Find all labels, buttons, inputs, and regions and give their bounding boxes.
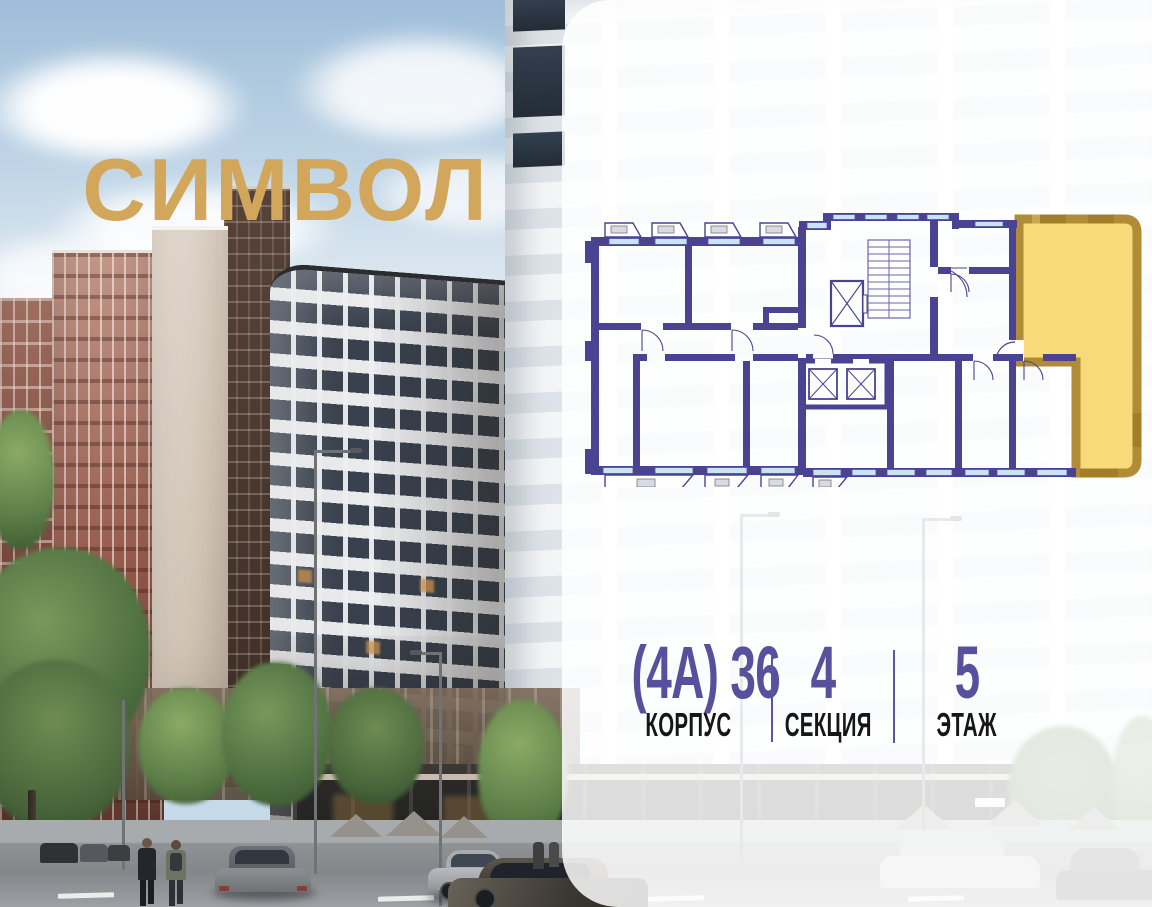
pedestrian-suit	[136, 838, 158, 906]
stairwell	[868, 240, 910, 318]
tree	[138, 688, 234, 804]
car-grey-sedan	[215, 846, 311, 894]
info-section: 4 СЕКЦИЯ	[758, 638, 888, 742]
parked-car	[80, 844, 108, 862]
elevator	[831, 281, 867, 326]
tree	[328, 688, 424, 804]
floor-label: ЭТАЖ	[902, 708, 1032, 742]
street-lamp	[314, 450, 317, 874]
parked-car	[108, 845, 130, 861]
floor-value: 5	[902, 638, 1032, 706]
pedestrian-backpack	[164, 840, 188, 906]
divider	[893, 650, 895, 743]
section-value: 4	[758, 638, 888, 706]
parked-car	[40, 843, 78, 863]
logo-simvol: СИМВОЛ	[58, 146, 514, 234]
listing-screenshot: СИМВОЛ	[0, 0, 1152, 907]
floor-plan[interactable]	[585, 211, 1142, 487]
elevator-shaft	[801, 359, 887, 407]
pedestrian-small	[549, 842, 559, 867]
apartment-highlight[interactable]	[1019, 219, 1137, 473]
pedestrian-small	[533, 842, 544, 869]
info-floor: 5 ЭТАЖ	[902, 638, 1032, 742]
section-label: СЕКЦИЯ	[758, 708, 888, 742]
